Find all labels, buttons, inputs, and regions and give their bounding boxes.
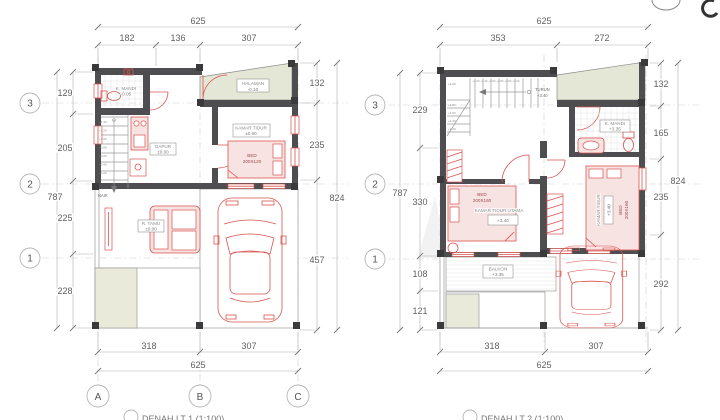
bed-icon: BED 200X120 [228,141,285,178]
dim-label: 625 [190,360,205,370]
dim-label: 205 [57,143,72,153]
plan1-kitchen: DAPUR ±0.00 [130,117,176,176]
dim-label: 307 [588,341,603,351]
plan1-living-room: R. TAMU ±0.00 [105,206,200,253]
grid-row-label: 3 [27,99,33,110]
room-label: R. TAMU [142,221,160,226]
wardrobe-icon [447,150,462,182]
dim-label: 824 [329,193,344,203]
dim-label: 318 [141,341,156,351]
dim-label: 457 [309,255,324,265]
grid-row-label: 1 [372,255,378,266]
room-level: ±0.00 [145,227,157,232]
floorplan-drawing: 625 182 136 307 129 205 225 228 787 132 … [0,0,720,420]
room-label: BALKON [489,267,508,272]
stair-step-level: +3.00 [505,79,512,83]
side-table-icon [448,243,458,253]
room-level: +3.35 [492,272,504,277]
room-level: -0.10 [248,87,259,92]
room-label: KAMAR TIDUR [596,194,601,226]
plan2-bedroom2-label: KAMAR TIDUR +3.40 [596,194,613,226]
stair-step-level: +2.80 [497,79,504,83]
plan1-garden [95,268,137,328]
dim-label: 165 [653,128,668,138]
room-level: +3.35 [609,127,621,132]
bed-icon: BED 200X160 [448,186,516,241]
plan2-roof-area [557,62,645,100]
room-level: -0.05 [121,92,132,97]
room-label: K. MANDI [605,121,625,126]
dim-label: 272 [594,33,609,43]
grid-row-label: 1 [27,254,33,265]
plan1-bedroom: KAMAR TIDUR ±0.00 BED 200X120 [228,124,285,178]
dim-label: 307 [241,33,256,43]
plan2-balcony: BALKON +3.35 [446,257,556,291]
plan2-bedroom2: BED 200X160 KAMAR TIDUR +3.40 [547,166,639,250]
bed-label: BED [247,153,257,158]
car-icon [556,246,627,328]
dim-label: 353 [490,33,505,43]
dim-label: 225 [57,213,72,223]
plan-caption-text: DENAH LT 1 (1:100) [142,414,224,420]
stair-step-level: +2.40 [481,79,488,83]
partial-logo [652,0,717,16]
plan2-bathroom: K. MANDI +3.35 [575,107,639,153]
dim-label: 229 [412,105,427,115]
dim-label: 228 [57,286,72,296]
stair-step-level: +1.60 [448,111,456,115]
plan1-caption: DENAH LT 1 (1:100) [124,410,224,420]
dim-label: 625 [190,16,205,26]
dim-label: 132 [653,79,668,89]
plan2-master-bedroom: BED 200X160 KAMAR TIDUR UTAMA +3.40 [447,150,524,253]
stair-step-level: +0.60 [99,154,107,158]
dim-label: 292 [653,279,668,289]
dim-label: 235 [653,192,668,202]
plan2-caption: DENAH LT 2 (1:100) [463,410,563,420]
stair-step-level: +2.20 [473,79,480,83]
bed-label: BED [477,192,487,197]
wardrobe-icon [547,194,563,234]
dim-label: 824 [670,176,685,186]
grid-col-label: A [95,392,102,403]
room-label: KAMAR TIDUR UTAMA [475,208,525,213]
stair-step-level: +1.00 [99,137,107,141]
dim-label: 132 [309,78,324,88]
plan2-stairs: +2.20 +2.40 +2.60 +2.80 +3.00 +3.20 +2.0… [447,78,550,136]
dim-label: 787 [47,192,62,202]
stair-step-level: +3.20 [513,79,520,83]
plan1-halaman-label: HALAMAN -0.10 [237,79,269,92]
stair-step-level: +1.20 [99,129,107,133]
dim-label: 129 [57,88,72,98]
stair-step-level: +1.40 [99,120,107,124]
dim-label: 108 [412,269,427,279]
stairs-direction-label: TURUN [535,87,550,92]
room-label: KAMAR TIDUR [235,126,267,131]
toilet-icon [623,132,634,152]
room-level: +3.40 [607,204,612,216]
stove-icon [131,117,148,150]
dim-label: 182 [119,33,134,43]
dim-label: 307 [241,341,256,351]
bed-size-label: 200X160 [624,200,629,219]
room-level: ±0.00 [245,131,257,136]
room-label: HALAMAN [242,81,264,86]
stair-step-level: +1.20 [448,127,456,131]
dim-label: 787 [392,188,407,198]
console-table-icon [105,208,112,250]
grid-row-label: 2 [27,180,33,191]
plan2-grid-bubbles: 3 2 1 [365,95,385,269]
plan1: 625 182 136 307 129 205 225 228 787 132 … [20,16,348,420]
room-level: +3.40 [497,218,509,223]
room-level: ±0.00 [157,150,169,155]
plan2: 625 353 272 229 330 108 121 787 132 165 … [365,16,702,420]
dim-label: 330 [412,197,427,207]
dim-label: 121 [412,306,427,316]
plan2-lower-wall [440,255,444,328]
stair-step-level: +0.40 [99,163,107,167]
room-label: DAPUR [155,144,172,149]
stairs-direction-label: NAIK [98,193,108,198]
toilet-icon [101,91,121,101]
dim-label: 136 [170,33,185,43]
bed-size-label: 200X120 [243,159,262,164]
grid-col-label: B [197,392,204,403]
vanity-sink-icon [578,138,604,153]
dim-label: 625 [536,360,551,370]
stair-step-level: +0.20 [99,171,107,175]
grid-col-label: C [294,392,301,403]
stair-step-level: +1.40 [448,119,456,123]
plan-caption-text: DENAH LT 2 (1:100) [481,414,563,420]
stair-step-level: +2.00 [448,82,456,86]
stairs-direction-level: +3.40 [537,93,548,98]
plan1-carport-outline [200,189,298,328]
stair-step-level: +0.80 [99,146,107,150]
dim-label: 318 [484,341,499,351]
dim-label: 235 [309,140,324,150]
stair-step-level: +1.80 [448,103,456,107]
bed-label: BED [618,205,623,215]
room-label: K. MANDI [116,86,136,91]
dim-label: 625 [536,16,551,26]
floorplan-sheet: 625 182 136 307 129 205 225 228 787 132 … [0,0,720,420]
grid-row-label: 3 [372,101,378,112]
plan2-garden [446,294,479,328]
bed-size-label: 200X160 [473,198,492,203]
stair-step-level: +2.60 [489,79,496,83]
kitchen-sink-icon [130,159,146,176]
grid-row-label: 2 [372,180,378,191]
